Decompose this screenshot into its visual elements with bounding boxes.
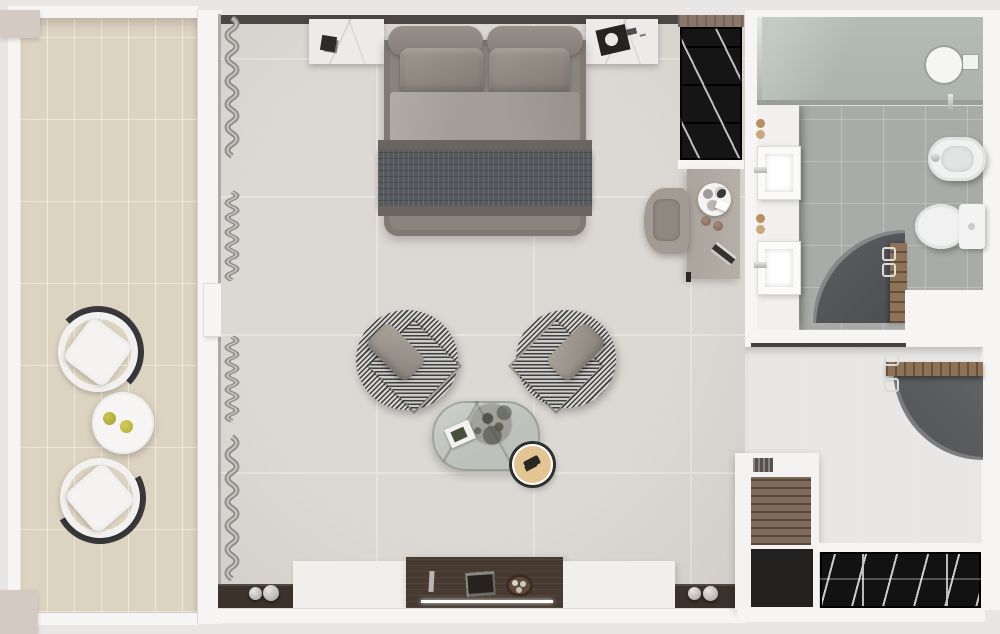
- bedroom-bottom-wall: [218, 608, 745, 623]
- coffee-cup: [701, 216, 711, 226]
- wardrobe-base: [678, 160, 744, 169]
- neighbor-wall-stub-top: [0, 10, 40, 38]
- tweed-throw: [378, 151, 592, 207]
- bathroom-left-wall: [745, 10, 757, 347]
- chrome-hook: [884, 352, 899, 366]
- console-tray: [465, 571, 496, 597]
- armchair-left: [356, 310, 458, 410]
- closet-lower-cabinet: [751, 549, 813, 607]
- bidet-bowl: [941, 146, 974, 172]
- chrome-hook: [884, 378, 899, 392]
- wardrobe2-rail-line: [820, 578, 981, 580]
- nightstand-decor: [320, 35, 337, 52]
- tv-screen-edge: [421, 600, 553, 603]
- decor-sphere: [249, 587, 262, 600]
- desk-chair: [644, 188, 689, 254]
- faucet: [754, 167, 767, 173]
- towel-hook: [882, 247, 896, 261]
- wardrobe: [680, 27, 742, 160]
- tray-cup: [703, 189, 713, 199]
- coffee-cup: [713, 221, 723, 231]
- curtain-segment: [220, 192, 244, 280]
- toiletries: [756, 119, 765, 128]
- entry-bottom-wall: [737, 608, 985, 622]
- towel-shelf: [886, 362, 983, 376]
- wood-bowl: [506, 574, 533, 597]
- bathroom-corner-wall: [905, 290, 1000, 347]
- balcony-chair-bottom: [51, 449, 149, 547]
- sink-basin: [765, 154, 793, 192]
- rain-shower-head: [926, 47, 962, 83]
- bidet-faucet: [931, 153, 940, 162]
- floor-plan: [0, 0, 1000, 634]
- toiletries: [756, 214, 765, 223]
- decor-sphere: [703, 586, 718, 601]
- wardrobe-top-panel: [678, 15, 744, 27]
- decor-sphere: [688, 587, 701, 600]
- pillow-right: [489, 48, 570, 94]
- pillow-left: [400, 48, 484, 94]
- balcony-chair-top: [46, 300, 150, 404]
- curtain-segment: [220, 18, 244, 156]
- decor-sphere: [263, 585, 279, 601]
- faucet: [754, 262, 767, 268]
- flush-button: [968, 223, 975, 230]
- curtain-segment: [220, 437, 244, 579]
- desk-handle: [686, 272, 691, 282]
- curtain-segment: [220, 337, 244, 421]
- sink-basin: [765, 249, 793, 287]
- shower-door-handle: [948, 94, 953, 110]
- sink-bottom: [757, 241, 801, 295]
- armchair-right: [516, 310, 616, 408]
- shower-control: [963, 55, 978, 69]
- towel-hook: [882, 263, 896, 277]
- bowl-contents: [512, 580, 518, 586]
- console-white-right: [563, 561, 675, 608]
- console-white-left: [293, 561, 406, 608]
- sink-top: [757, 146, 801, 200]
- neighbor-wall-stub-bottom: [0, 590, 38, 634]
- bathroom-top-wall: [745, 10, 990, 17]
- tray-dish: [715, 187, 726, 198]
- lemon: [120, 420, 133, 433]
- closet-top-decor: [753, 458, 773, 472]
- desk-chair-seat: [653, 199, 680, 241]
- wardrobe2-top-frame: [817, 543, 985, 552]
- closet-wood-shelf: [751, 477, 811, 545]
- lemon: [103, 412, 116, 425]
- throw-edge-bottom: [378, 206, 592, 216]
- shower-frame-chrome: [757, 17, 762, 100]
- hanging-wardrobe: [820, 552, 981, 608]
